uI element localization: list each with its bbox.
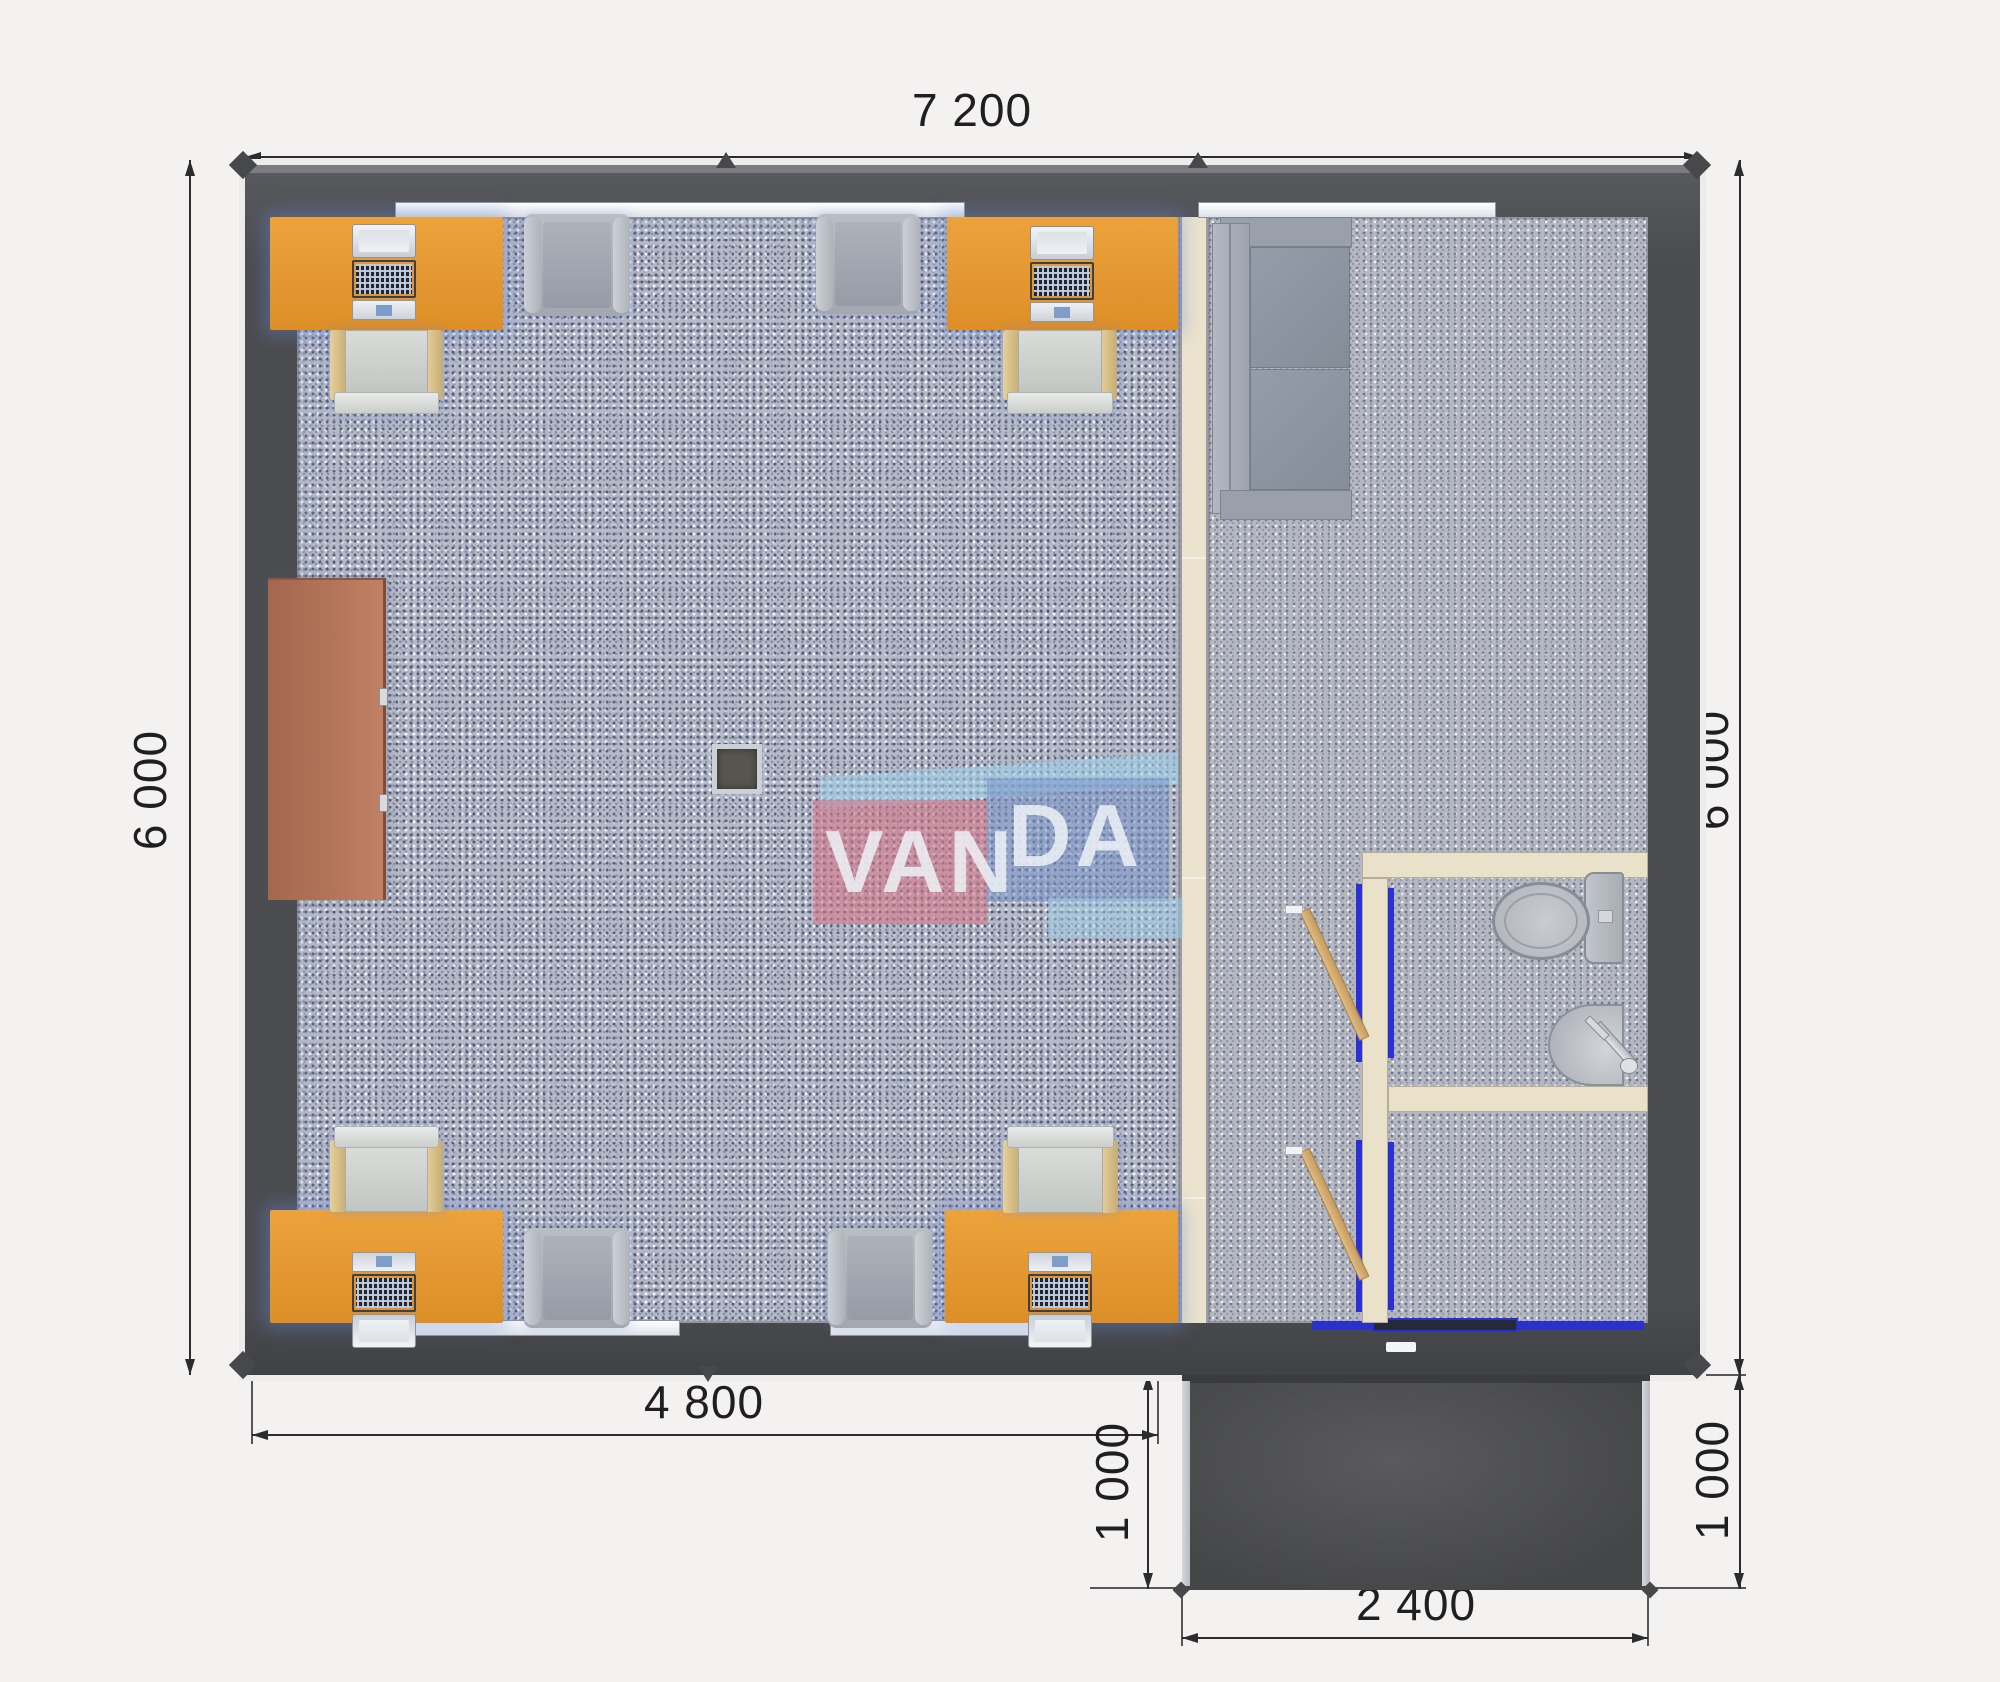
arrowhead-icon xyxy=(1143,1573,1153,1589)
roof-eave xyxy=(245,165,1700,173)
door-handle-icon xyxy=(1386,1342,1416,1352)
dim-line-office-width xyxy=(252,1434,1158,1436)
module-joint-mark-icon xyxy=(698,1366,718,1382)
cabinet-handle-icon xyxy=(379,688,388,706)
dim-label-porch-depth-left: 1 000 xyxy=(1088,1402,1136,1562)
dim-line-top xyxy=(245,156,1700,158)
arrowhead-icon xyxy=(1142,1430,1158,1440)
office-chair-top-right xyxy=(1003,330,1117,412)
watermark-brand-text: VAN xyxy=(825,818,1016,906)
system-unit xyxy=(352,300,416,320)
dim-label-left-height: 6 000 xyxy=(126,710,174,870)
office-chair-bottom-right xyxy=(1003,1128,1118,1213)
watermark-brand-text: DA xyxy=(1008,792,1143,880)
floor-plan-canvas: 7 200 6 000 6 000 4 800 1 000 1 000 2 40… xyxy=(0,0,2000,1682)
monitor xyxy=(352,1314,416,1348)
door-frame xyxy=(1388,888,1394,1058)
sofa-armrest xyxy=(1220,490,1352,520)
entrance-door xyxy=(1372,1318,1518,1332)
module-joint-mark-icon xyxy=(716,152,736,168)
guest-armchair-bottom-right xyxy=(828,1228,932,1328)
desktop-computer xyxy=(1030,226,1094,322)
guest-armchair-top-right xyxy=(816,214,920,314)
guest-armchair-top-left xyxy=(524,214,630,316)
arrowhead-icon xyxy=(1734,1573,1744,1589)
arrowhead-icon xyxy=(1734,1374,1744,1390)
arrowhead-icon xyxy=(185,160,195,176)
door-hinge-icon xyxy=(1285,905,1303,914)
wall-seam xyxy=(1182,557,1206,559)
arrowhead-icon xyxy=(1182,1633,1198,1643)
system-unit xyxy=(1028,1252,1092,1272)
arrowhead-icon xyxy=(1143,1374,1153,1390)
bathroom-wall-vertical xyxy=(1362,878,1388,1323)
wall-seam xyxy=(1182,1197,1206,1199)
keyboard xyxy=(1030,262,1094,300)
support-column xyxy=(712,744,762,794)
office-chair-bottom-left xyxy=(330,1128,443,1212)
porch-post xyxy=(1642,1381,1650,1586)
desktop-computer xyxy=(352,1252,416,1348)
monitor xyxy=(1030,226,1094,260)
guest-armchair-bottom-left xyxy=(524,1228,630,1328)
cabinet-handle-icon xyxy=(379,794,388,812)
arrowhead-icon xyxy=(1632,1633,1648,1643)
system-unit xyxy=(1030,302,1094,322)
entrance-porch xyxy=(1182,1375,1650,1590)
sofa-cushion xyxy=(1250,247,1350,368)
dim-line-porch-width xyxy=(1182,1637,1648,1639)
door-frame xyxy=(1356,1140,1362,1312)
dim-label-top-width: 7 200 xyxy=(810,86,1134,134)
arrowhead-icon xyxy=(185,1359,195,1375)
keyboard xyxy=(1028,1274,1092,1312)
dim-label-porch-depth-right: 1 000 xyxy=(1688,1400,1736,1560)
arrowhead-icon xyxy=(1734,1359,1744,1375)
keyboard xyxy=(352,1274,416,1312)
door-hinge-icon xyxy=(1285,1146,1303,1155)
extension-line xyxy=(1090,1587,1182,1589)
dim-line-porch-left xyxy=(1147,1374,1149,1589)
dim-label-office-width: 4 800 xyxy=(554,1378,854,1426)
desktop-computer xyxy=(352,224,416,320)
storage-cabinet xyxy=(268,578,386,900)
porch-step-edge xyxy=(1182,1375,1650,1383)
toilet xyxy=(1492,882,1590,960)
extension-line xyxy=(1654,1587,1746,1589)
arrowhead-icon xyxy=(252,1430,268,1440)
arrowhead-icon xyxy=(1734,160,1744,176)
dim-line-right xyxy=(1739,160,1741,1375)
module-joint-mark-icon xyxy=(1188,152,1208,168)
flush-button-icon xyxy=(1598,910,1613,923)
monitor xyxy=(352,224,416,258)
sofa-cushion xyxy=(1250,369,1350,490)
window-top-right xyxy=(1198,202,1496,218)
partition-wall xyxy=(1180,217,1208,1323)
bathroom-wall-middle xyxy=(1388,1086,1648,1112)
sofa xyxy=(1212,217,1352,520)
dim-line-left xyxy=(189,160,191,1375)
system-unit xyxy=(352,1252,416,1272)
office-chair-top-left xyxy=(330,330,443,412)
faucet-knob-icon xyxy=(1620,1058,1638,1074)
monitor xyxy=(1028,1314,1092,1348)
keyboard xyxy=(352,260,416,298)
logo-sky-tail xyxy=(1048,898,1183,938)
wall-seam xyxy=(1182,877,1206,879)
porch-post xyxy=(1182,1381,1190,1586)
dim-line-porch-right xyxy=(1739,1374,1741,1589)
door-frame xyxy=(1388,1142,1394,1310)
desktop-computer xyxy=(1028,1252,1092,1348)
toilet-tank xyxy=(1584,872,1624,964)
sofa-backrest xyxy=(1212,223,1250,514)
